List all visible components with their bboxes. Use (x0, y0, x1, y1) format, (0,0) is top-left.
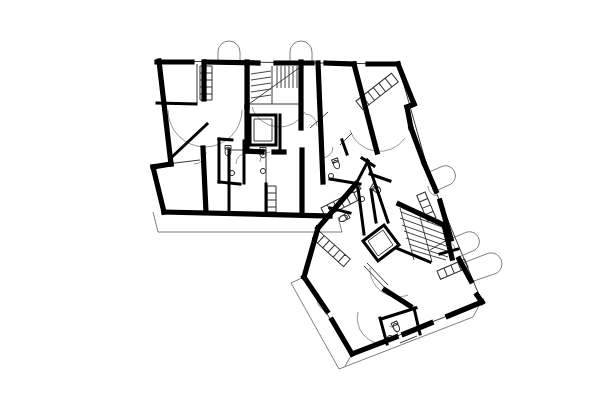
exterior-wall-southwest (332, 320, 352, 354)
party-wall-diagonal (318, 184, 356, 228)
swing-arc-left-room (168, 110, 242, 147)
exterior-wall-northeast (424, 163, 436, 191)
elevator-lower-shaft (363, 225, 399, 261)
toilet (338, 213, 350, 223)
lower-interior-wall (385, 290, 410, 306)
interior-wall-diagonal (354, 64, 377, 152)
exterior-wall-bottom (164, 212, 330, 216)
junction-bath-wall (342, 140, 347, 154)
balcony-arch-top-left (218, 41, 240, 62)
exterior-wall-top (326, 63, 354, 64)
stair-upper-treads-left-flight (251, 71, 271, 98)
exterior-wall-notch (407, 107, 411, 128)
exterior-wall-left-jog (153, 164, 171, 167)
sink (260, 168, 265, 173)
stair-lower-edge (420, 217, 432, 262)
exterior-wall-southwest (304, 277, 327, 311)
floor-plan-page (0, 0, 600, 400)
stair-treads (249, 66, 448, 262)
floor-plan-svg (0, 0, 600, 400)
exterior-wall-right-diagonal (398, 64, 414, 104)
wardrobe-corridor (267, 186, 276, 212)
thick-walls (153, 61, 482, 354)
junction-wall (358, 188, 364, 234)
junction-wall (356, 161, 368, 184)
balcony-arch-top-right (290, 41, 312, 62)
lower-bath-wall (381, 308, 416, 319)
toilet (332, 158, 341, 170)
exterior-wall-left (159, 61, 171, 164)
fixtures (200, 66, 468, 341)
junction-bath-wall (371, 190, 376, 222)
exterior-wall-northwest (304, 228, 318, 277)
exterior-wall-left-lower (153, 167, 164, 212)
bath-wall (219, 139, 232, 140)
door-swing (305, 114, 317, 126)
exterior-wall-southeast (352, 337, 396, 354)
exterior-wall-top (206, 62, 258, 63)
interior-wall (247, 151, 262, 152)
interior-wall (203, 148, 206, 212)
toilet (391, 321, 401, 333)
interior-wall-long (318, 63, 323, 182)
